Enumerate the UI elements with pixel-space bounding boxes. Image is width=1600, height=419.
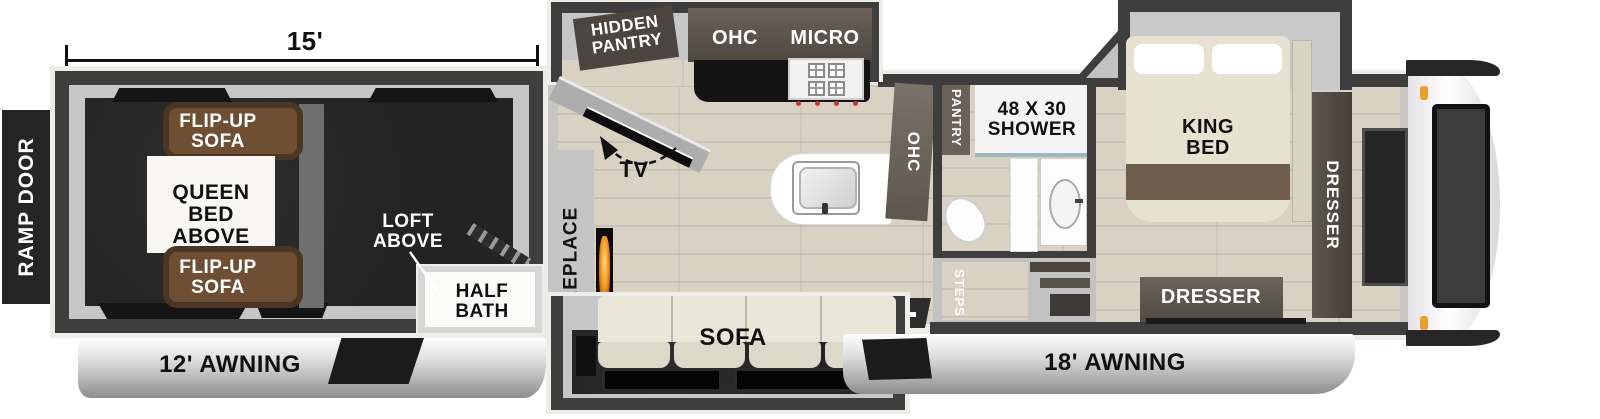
sofa-back-cushion bbox=[598, 296, 673, 342]
stove bbox=[788, 58, 864, 100]
bath-vanity bbox=[1040, 158, 1087, 246]
step-edge-1 bbox=[1030, 262, 1090, 272]
step-edge-3 bbox=[1050, 294, 1090, 316]
half-bath-label: HALF BATH bbox=[444, 282, 520, 322]
rv-floorplan: 15' RAMP DOOR FLIP-UP SOFA QUEEN BED ABO… bbox=[0, 0, 1600, 419]
kitchen-ohc-label: OHC bbox=[700, 28, 770, 49]
garage-window-top-right bbox=[368, 88, 498, 102]
stove-knobs bbox=[796, 101, 858, 106]
bathroom-door bbox=[1010, 158, 1038, 252]
stove-burner-icon bbox=[828, 81, 845, 96]
flip-up-sofa-top-label: FLIP-UP SOFA bbox=[168, 112, 268, 152]
awning-left-label: 12' AWNING bbox=[150, 352, 310, 377]
sofa-slide-window bbox=[576, 336, 596, 376]
stove-burner-icon bbox=[808, 81, 825, 96]
awning-right-label: 18' AWNING bbox=[1030, 350, 1200, 375]
front-cap-window bbox=[1432, 104, 1490, 308]
dimension-label: 15' bbox=[255, 28, 355, 55]
bath-faucet-icon bbox=[1075, 199, 1083, 203]
marker-light-top-icon bbox=[1420, 86, 1428, 100]
dresser-side-label: DRESSER bbox=[1323, 152, 1341, 258]
counter-ohc-label: OHC bbox=[904, 128, 922, 176]
marker-light-bottom-icon bbox=[1420, 316, 1428, 330]
stove-knob-icon bbox=[796, 101, 801, 106]
dresser-foot-mat bbox=[1146, 318, 1306, 324]
bath-sink-basin bbox=[1049, 179, 1081, 229]
kitchen-sink bbox=[792, 161, 860, 215]
garage-window-top-left bbox=[112, 88, 232, 102]
body-wall-top-right bbox=[1346, 74, 1412, 87]
pillow-right bbox=[1212, 44, 1282, 74]
stove-knob-icon bbox=[815, 101, 820, 106]
step-edge-2 bbox=[1040, 278, 1090, 288]
bedroom-window bbox=[1362, 128, 1408, 286]
bed-runner-stripe bbox=[1126, 164, 1290, 200]
front-cap-bottom-band bbox=[1406, 330, 1500, 346]
shower-label: 48 X 30 SHOWER bbox=[982, 100, 1082, 140]
pillow-left bbox=[1134, 44, 1204, 74]
dresser-foot-label: DRESSER bbox=[1151, 287, 1271, 308]
stove-burner-icon bbox=[808, 63, 825, 78]
flip-up-sofa-bottom-label: FLIP-UP SOFA bbox=[168, 258, 268, 298]
steps-label: STEPS bbox=[953, 264, 967, 322]
sofa-slide-mat-left bbox=[602, 368, 722, 392]
stove-knob-icon bbox=[853, 101, 858, 106]
dimension-line bbox=[66, 59, 538, 62]
front-cap-top-band bbox=[1406, 60, 1500, 76]
kitchen-micro-label: MICRO bbox=[785, 28, 865, 49]
sofa-seat-cushion bbox=[598, 342, 670, 368]
pantry-label: PANTRY bbox=[950, 86, 964, 150]
bedside-cabinet bbox=[1292, 40, 1312, 222]
kitchen-sink-basin bbox=[799, 167, 857, 209]
awning-left bbox=[78, 338, 546, 398]
stove-knob-icon bbox=[834, 101, 839, 106]
loft-above-label: LOFT ABOVE bbox=[366, 212, 450, 252]
awning-right-step bbox=[862, 338, 932, 380]
ramp-door-label: RAMP DOOR bbox=[16, 132, 38, 282]
sofa-label: SOFA bbox=[688, 325, 778, 350]
queen-bed-above-label: QUEEN BED ABOVE bbox=[151, 182, 271, 248]
kitchen-faucet-icon bbox=[822, 203, 828, 214]
awning-left-step bbox=[328, 338, 424, 384]
tv-label: TV bbox=[612, 158, 656, 181]
king-bed-label: KING BED bbox=[1173, 117, 1243, 159]
stove-burner-icon bbox=[828, 63, 845, 78]
